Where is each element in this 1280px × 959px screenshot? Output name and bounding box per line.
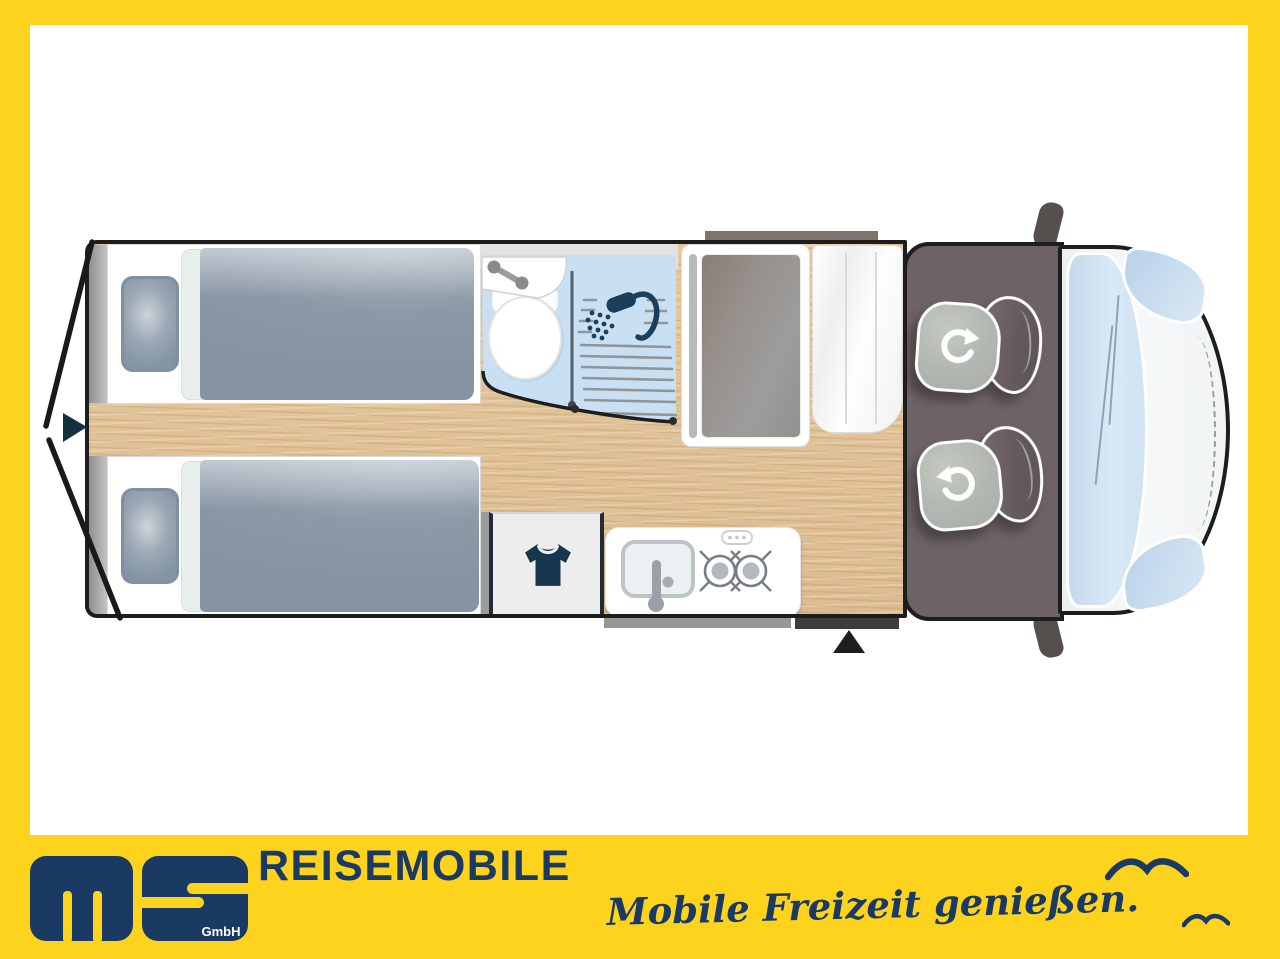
slogan: Mobile Freizeit genießen. <box>606 876 1140 934</box>
swivel-arrow-icon <box>933 323 982 372</box>
entry-step <box>604 617 791 628</box>
vehicle-body-outline <box>85 240 907 618</box>
seagull-icon <box>1105 853 1189 887</box>
seagull-icon <box>1182 908 1230 934</box>
rear-door-line <box>46 242 92 426</box>
wordmark: REISEMOBILE <box>258 845 571 888</box>
rear-door-line <box>49 440 120 618</box>
entry-arrow-icon <box>833 630 865 653</box>
advert-page: { "brand": { "monogram": "ms", "monogram… <box>0 0 1280 959</box>
swivel-seat <box>913 423 1052 546</box>
swivel-seat <box>912 290 1049 411</box>
swivel-arrow-icon <box>934 460 984 510</box>
wiper-icon <box>1108 295 1119 425</box>
logo-subtext: GmbH <box>202 924 241 939</box>
rear-door-markers <box>30 230 140 670</box>
rear-arrow-icon <box>63 413 87 442</box>
ms-logo: GmbH <box>28 854 250 943</box>
